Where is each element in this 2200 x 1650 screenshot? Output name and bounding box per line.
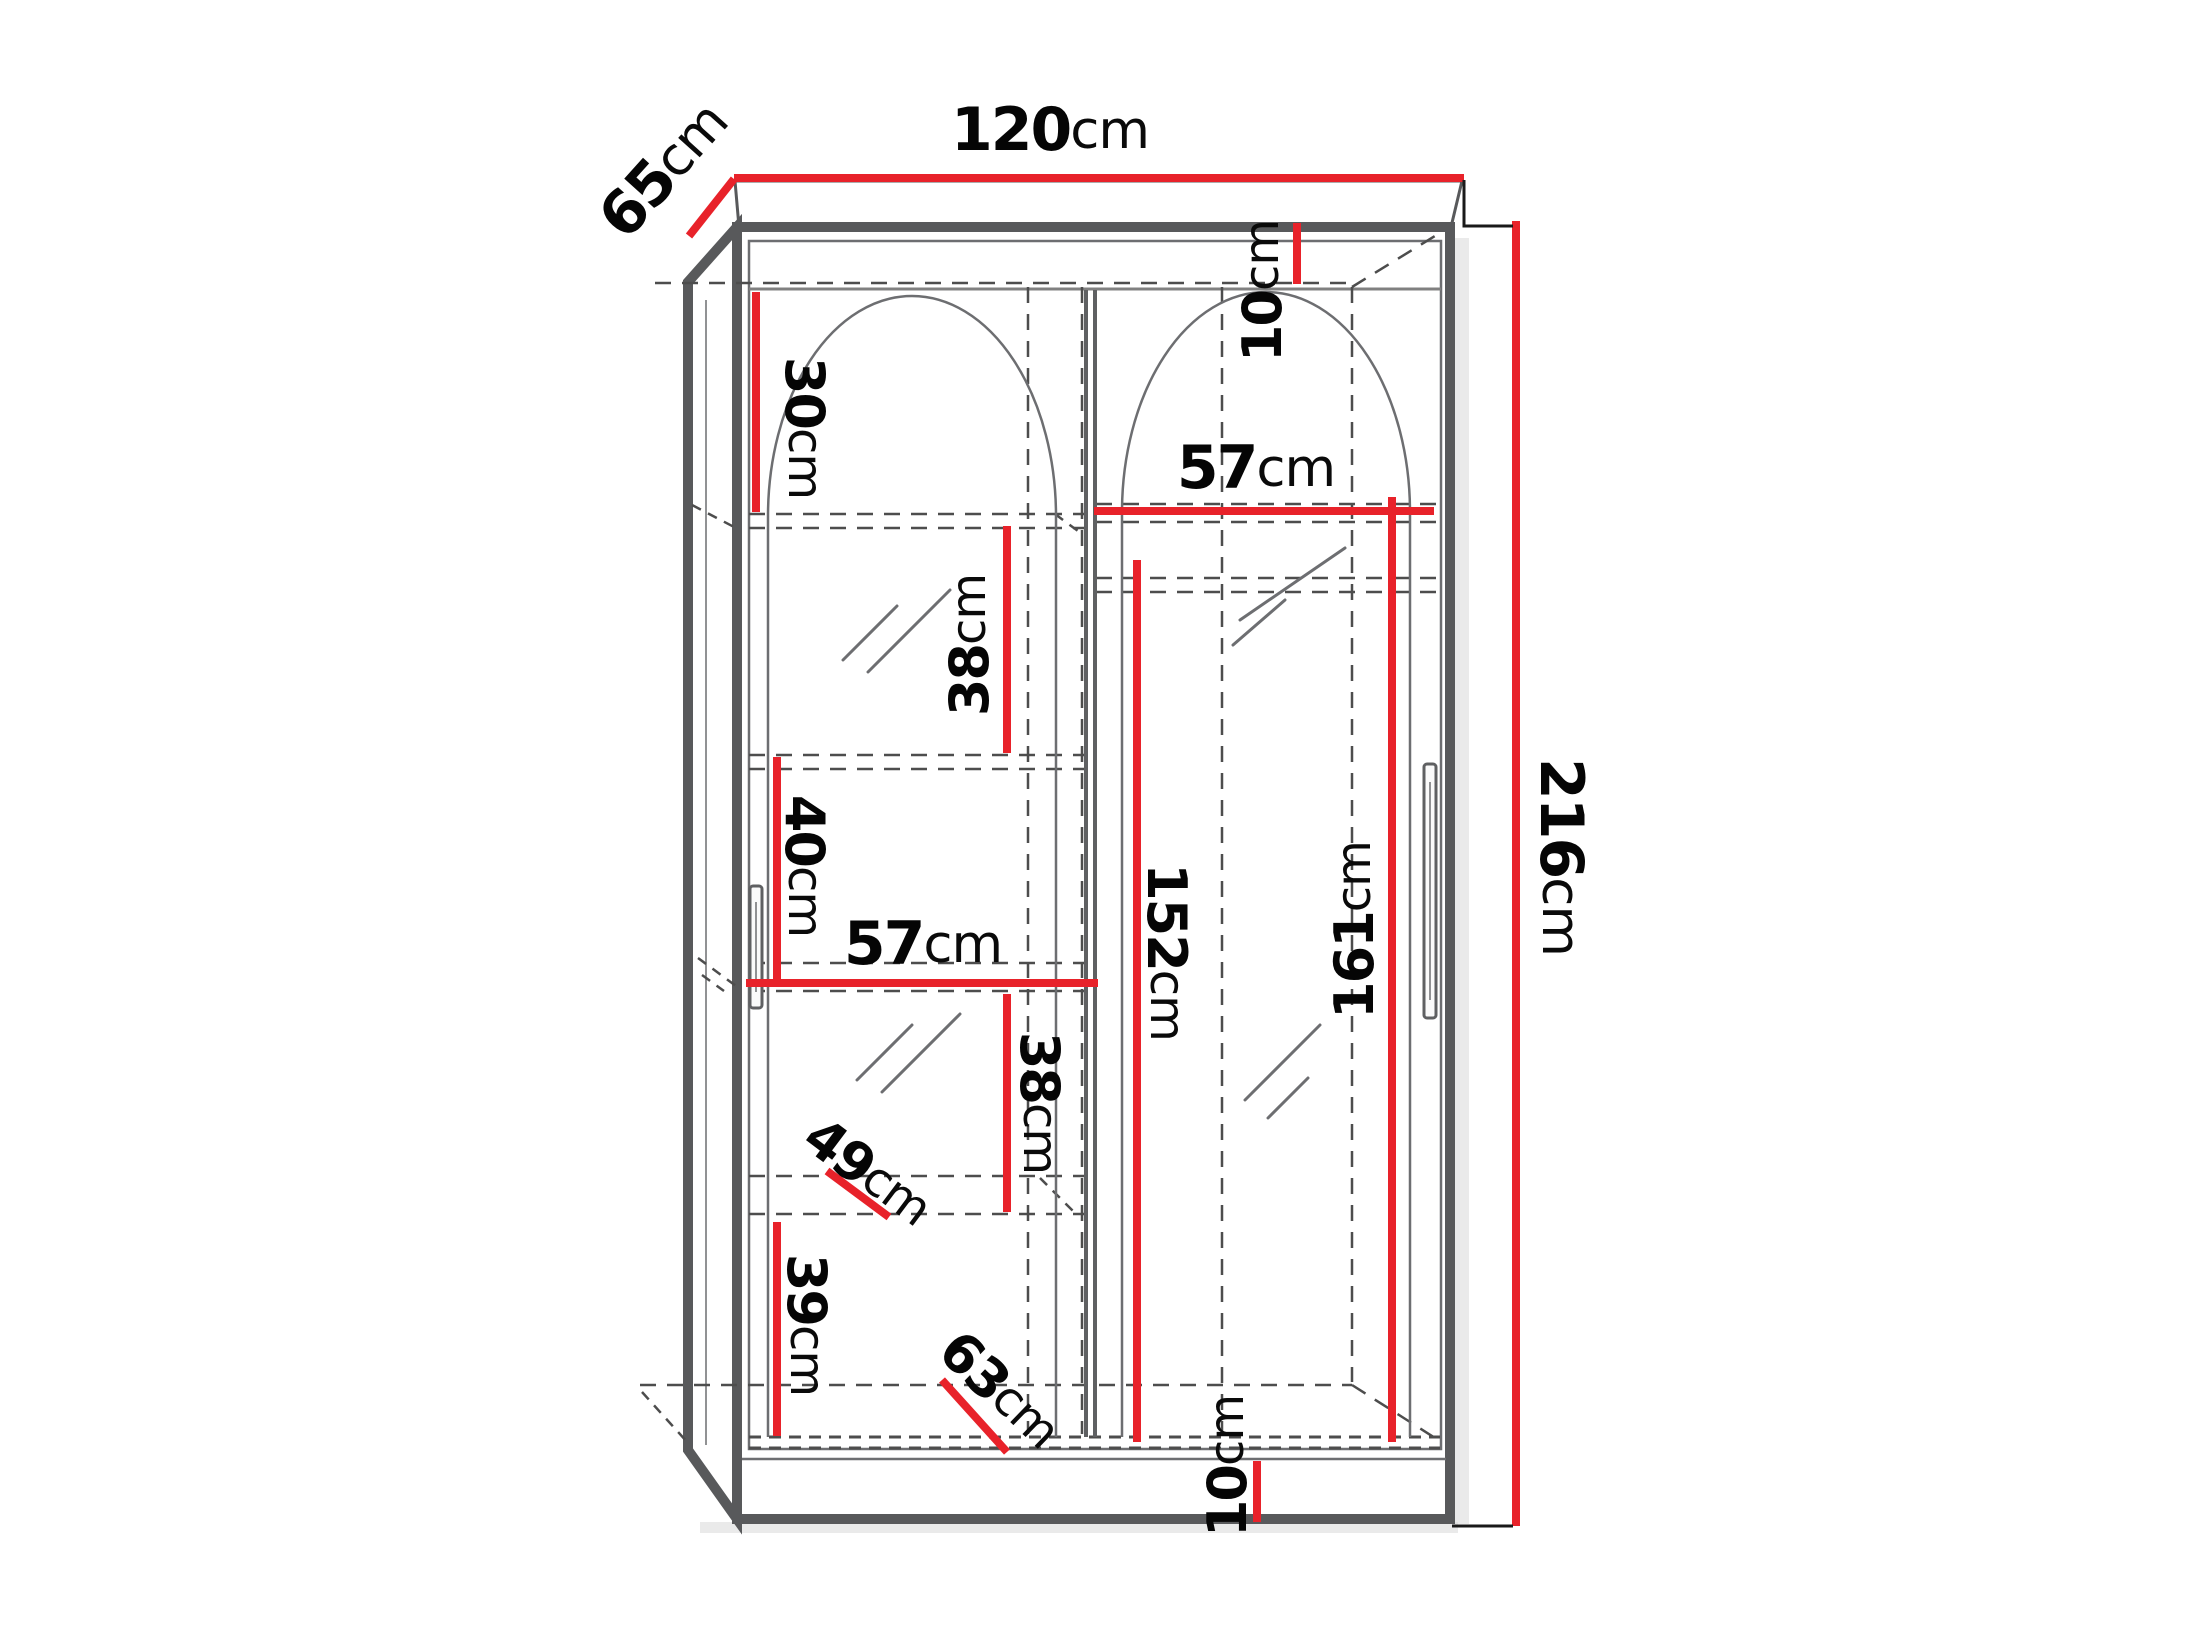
- label-left-gap-lower: 38cm: [1009, 1032, 1072, 1174]
- dim-unit: cm: [923, 914, 1002, 975]
- dim-value: 39: [776, 1254, 839, 1325]
- dim-value: 161: [1323, 912, 1386, 1019]
- dim-line-overall-depth: [689, 179, 734, 236]
- label-right-hanging-height: 152cm: [1136, 863, 1199, 1041]
- dim-unit: cm: [1012, 1103, 1068, 1174]
- right-shadow: [1455, 238, 1469, 1524]
- dim-value: 38: [938, 645, 1001, 716]
- dim-value: 57: [844, 909, 924, 979]
- dim-unit: cm: [777, 866, 833, 937]
- label-left-shelf-width: 57cm: [844, 909, 1002, 979]
- left-side-face: [688, 227, 737, 1519]
- label-left-gap-middle: 40cm: [774, 795, 837, 937]
- dim-unit: cm: [1199, 1395, 1255, 1466]
- label-overall-depth: 65cm: [585, 88, 743, 252]
- dim-unit: cm: [1234, 220, 1290, 291]
- dim-unit: cm: [779, 1325, 835, 1396]
- label-left-bottom-section: 39cm: [776, 1254, 839, 1396]
- label-left-gap-upper: 38cm: [938, 574, 1001, 716]
- left-door-handle: [750, 886, 762, 1008]
- label-overall-width: 120cm: [951, 95, 1149, 165]
- dim-value: 10: [1196, 1466, 1259, 1537]
- dim-value: 30: [774, 357, 837, 428]
- right-door-handle: [1424, 764, 1436, 1018]
- diagram-canvas: 120cm 65cm 216cm 10cm 30cm 57cm 38cm 161…: [0, 0, 2200, 1650]
- wardrobe-dimension-diagram: 120cm 65cm 216cm 10cm 30cm 57cm 38cm 161…: [0, 0, 2200, 1650]
- dim-unit: cm: [777, 428, 833, 499]
- label-right-shelf-width: 57cm: [1177, 433, 1335, 503]
- label-overall-height: 216cm: [1526, 758, 1596, 956]
- label-top-clearance: 10cm: [1231, 220, 1294, 362]
- dim-unit: cm: [1256, 438, 1335, 499]
- top-face: [735, 181, 1462, 227]
- dim-unit: cm: [1326, 841, 1382, 912]
- dim-value: 57: [1177, 433, 1257, 503]
- dim-unit: cm: [1070, 100, 1149, 161]
- dim-value: 38: [1009, 1032, 1072, 1103]
- label-right-inner-height: 161cm: [1323, 841, 1386, 1019]
- dim-value: 10: [1231, 291, 1294, 362]
- dim-value: 120: [951, 95, 1070, 165]
- dim-unit: cm: [1531, 877, 1592, 956]
- dim-value: 40: [774, 795, 837, 866]
- dim-value: 152: [1136, 863, 1199, 970]
- dim-unit: cm: [1139, 970, 1195, 1041]
- label-plinth-height: 10cm: [1196, 1395, 1259, 1537]
- leader-top-right: [1464, 180, 1513, 226]
- dim-unit: cm: [941, 574, 997, 645]
- dim-value: 216: [1526, 758, 1596, 877]
- label-upper-left-section: 30cm: [774, 357, 837, 499]
- bottom-left-depth-diagonal: [642, 1392, 688, 1443]
